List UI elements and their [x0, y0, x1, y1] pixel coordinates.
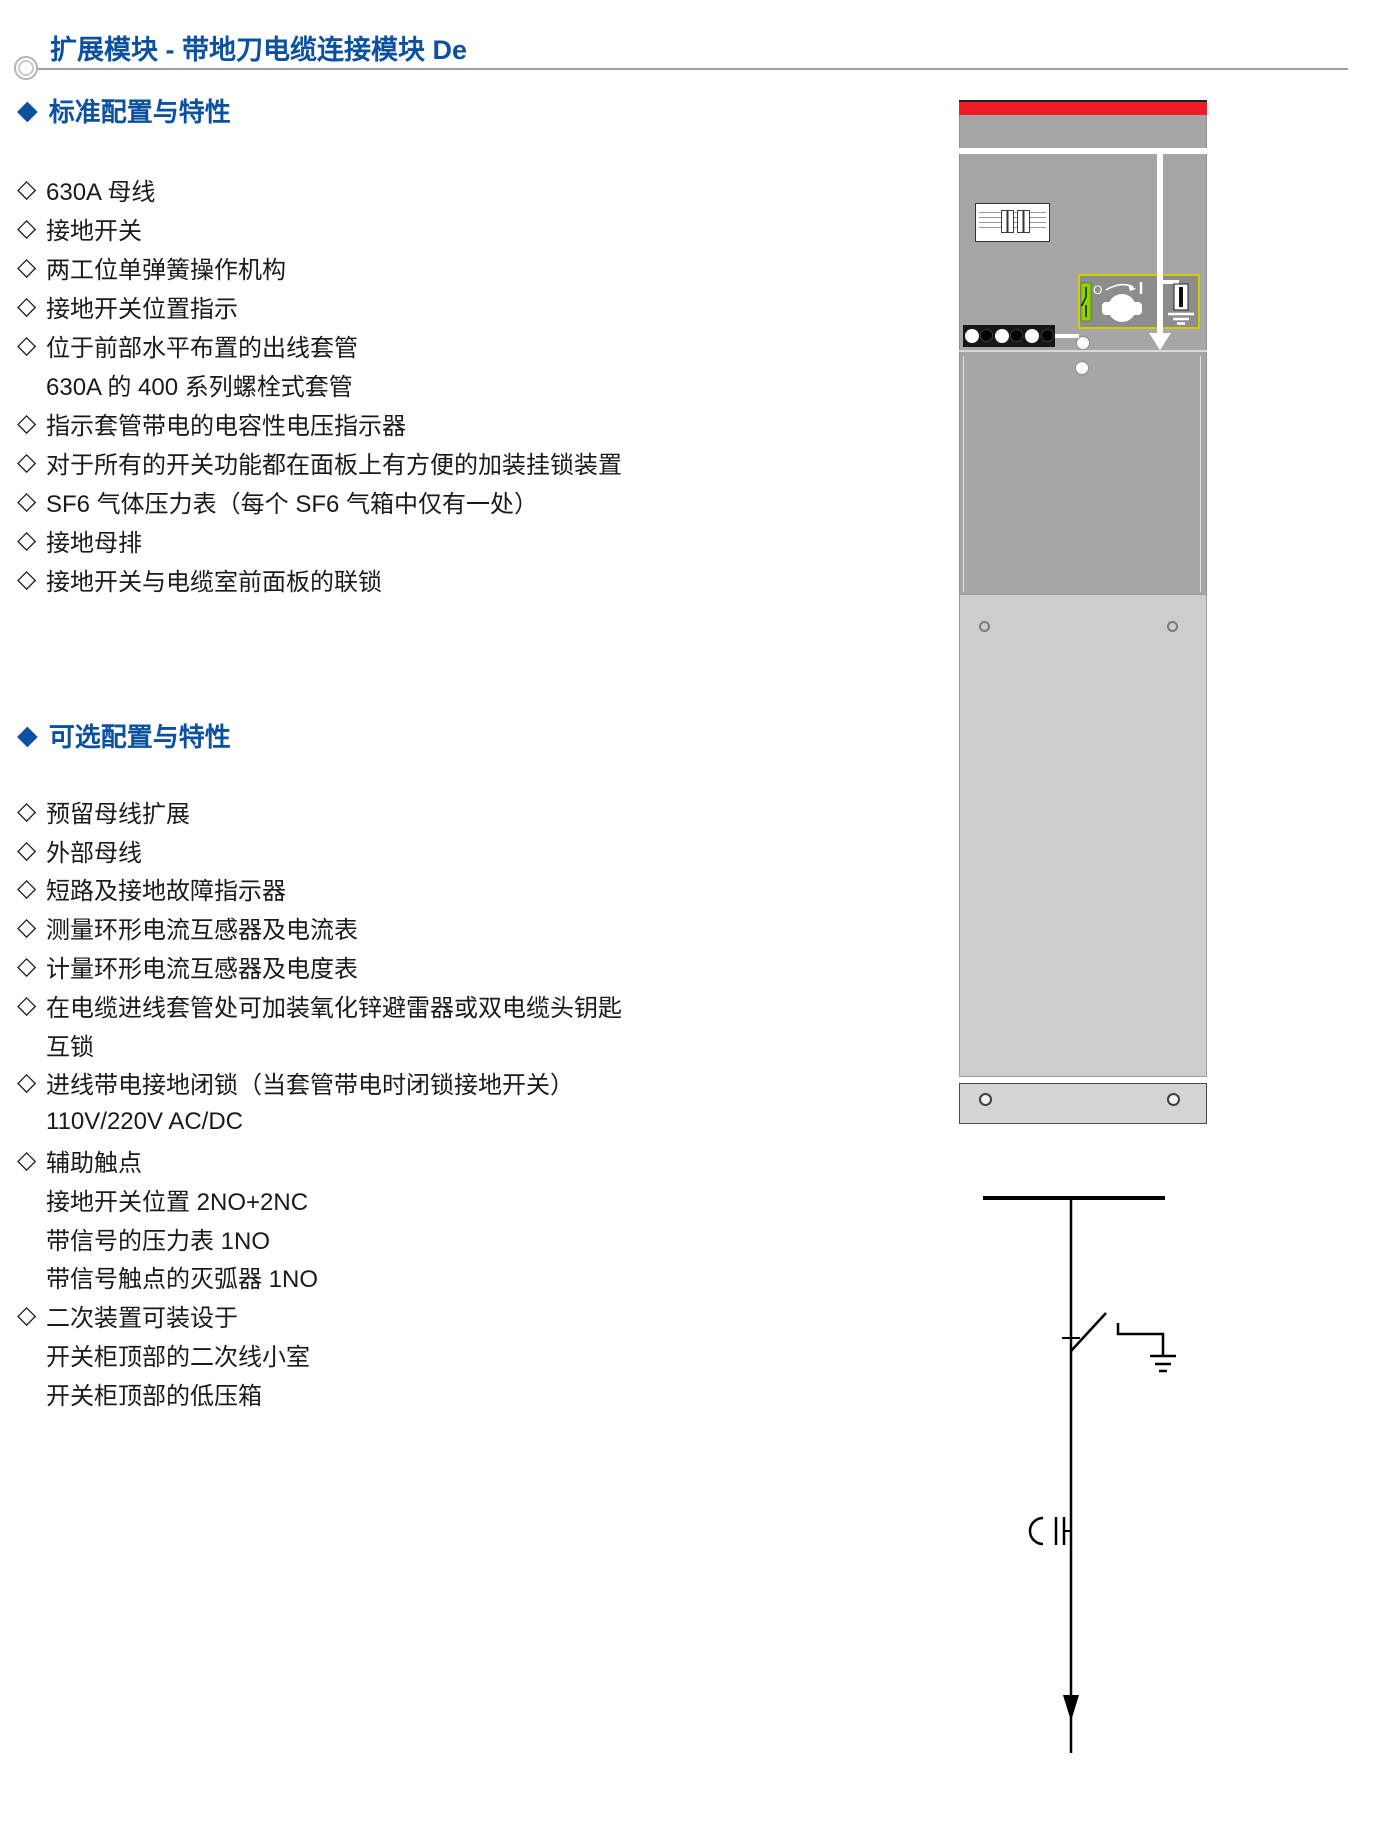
mimic-connector-line	[1055, 334, 1079, 338]
feature-item-text: 计量环形电流互感器及电度表	[46, 949, 358, 984]
feature-list-item: ◇测量环形电流互感器及电流表	[17, 908, 622, 947]
feature-item-text: 指示套管带电的电容性电压指示器	[46, 406, 406, 441]
diamond-bullet-icon: ◇	[17, 294, 46, 319]
plinth-hole-icon	[979, 1093, 992, 1106]
feature-item-text: 短路及接地故障指示器	[46, 871, 286, 906]
bushing-white-circle	[965, 329, 979, 343]
feature-item-text: 630A 母线	[46, 172, 155, 207]
feature-list-subitem: 630A 的 400 系列螺栓式套管	[17, 365, 622, 404]
operation-shaft-hole	[1076, 336, 1090, 350]
cable-arrow-icon	[1063, 1695, 1079, 1721]
feature-list-item: ◇接地开关位置指示	[17, 287, 622, 326]
cabinet-top-red-strip	[959, 100, 1207, 115]
knob-open-mark: O	[1093, 283, 1102, 297]
feature-list-subitem: 互锁	[17, 1025, 622, 1064]
feature-item-text: 接地开关	[46, 211, 142, 246]
ring-decoration-icon	[14, 56, 38, 80]
diamond-bullet-icon: ◇	[17, 799, 46, 824]
feature-item-text: 辅助触点	[46, 1143, 142, 1178]
rating-plate-cell	[1017, 210, 1030, 233]
feature-item-text: 接地母排	[46, 523, 142, 558]
voltage-indicator-socket-arc	[1030, 1518, 1043, 1544]
diamond-bullet-icon: ◇	[17, 1070, 46, 1095]
diamond-bullet-icon: ◇	[17, 876, 46, 901]
bushing-white-circle	[1025, 329, 1039, 343]
switchgear-front-view: O	[959, 100, 1207, 1125]
diamond-bullet-icon: ◇	[17, 528, 46, 553]
bushing-white-circle	[995, 329, 1009, 343]
feature-subitem-text: 开关柜顶部的低压箱	[46, 1376, 262, 1411]
feature-list-subitem: 开关柜顶部的低压箱	[17, 1374, 622, 1413]
rotation-arrowhead-icon	[1128, 284, 1136, 291]
operation-panel-graphics: O	[1078, 274, 1200, 329]
feature-list-item: ◇在电缆进线套管处可加装氧化锌避雷器或双电缆头钥匙	[17, 986, 622, 1025]
feature-subitem-text: 带信号的压力表 1NO	[46, 1221, 270, 1256]
section-heading-text: 可选配置与特性	[49, 717, 231, 754]
diamond-bullet-icon: ◇	[17, 915, 46, 940]
feature-list-item: ◇两工位单弹簧操作机构	[17, 248, 622, 287]
bushing-black-circle	[1042, 330, 1053, 341]
feature-item-text: 接地开关位置指示	[46, 289, 238, 324]
earth-symbol-icon	[1168, 314, 1194, 324]
bushing-black-circle	[981, 330, 992, 341]
door-divider-line	[959, 350, 1207, 352]
rating-plate-cell	[1001, 210, 1014, 233]
panel-screw-icon	[1167, 621, 1178, 632]
diamond-bullet-icon: ◇	[17, 450, 46, 475]
feature-list-subitem: 接地开关位置 2NO+2NC	[17, 1180, 622, 1219]
feature-list-item: ◇辅助触点	[17, 1141, 622, 1180]
feature-subitem-text: 630A 的 400 系列螺栓式套管	[46, 367, 353, 402]
feature-list-subitem: 开关柜顶部的二次线小室	[17, 1335, 622, 1374]
earthing-contact-blade	[1179, 287, 1183, 307]
feature-list-item: ◇SF6 气体压力表（每个 SF6 气箱中仅有一处）	[17, 482, 622, 521]
feature-list-subitem: 110V/220V AC/DC	[17, 1102, 622, 1141]
panel-screw-icon	[979, 621, 990, 632]
feature-item-text: 位于前部水平布置的出线套管	[46, 328, 358, 363]
cable-compartment-cover	[959, 594, 1207, 1077]
section-heading-text: 标准配置与特性	[49, 92, 231, 129]
feature-list-item: ◇二次装置可装设于	[17, 1296, 622, 1335]
feature-item-text: 接地开关与电缆室前面板的联锁	[46, 562, 382, 597]
single-line-diagram	[959, 1190, 1207, 1760]
rating-plate	[975, 203, 1050, 242]
earth-branch-line	[1118, 1323, 1163, 1356]
feature-list-item: ◇接地开关	[17, 209, 622, 248]
mimic-busbar-line	[959, 148, 1207, 154]
catalog-page: 扩展模块 - 带地刀电缆连接模块 De ◆ 标准配置与特性 ◇630A 母线◇接…	[0, 0, 1373, 1848]
feature-item-text: 对于所有的开关功能都在面板上有方便的加装挂锁装置	[46, 445, 622, 480]
feature-list-item: ◇接地母排	[17, 521, 622, 560]
diamond-bullet-icon: ◇	[17, 993, 46, 1018]
diamond-bullet-icon: ◇	[17, 1148, 46, 1173]
operating-knob[interactable]	[1108, 294, 1136, 322]
feature-list-subitem: 带信号触点的灭弧器 1NO	[17, 1258, 622, 1297]
section-heading-standard: ◆ 标准配置与特性	[17, 95, 231, 125]
diamond-bullet-icon: ◇	[17, 333, 46, 358]
optional-feature-list: ◇预留母线扩展◇外部母线◇短路及接地故障指示器◇测量环形电流互感器及电流表◇计量…	[17, 792, 622, 1413]
header-divider	[36, 68, 1348, 70]
diamond-bullet-icon: ◇	[17, 1303, 46, 1328]
feature-list-item: ◇外部母线	[17, 831, 622, 870]
feature-list-subitem: 带信号的压力表 1NO	[17, 1219, 622, 1258]
feature-list-item: ◇对于所有的开关功能都在面板上有方便的加装挂锁装置	[17, 443, 622, 482]
cabinet-plinth	[959, 1083, 1207, 1124]
feature-item-text: SF6 气体压力表（每个 SF6 气箱中仅有一处）	[46, 484, 538, 519]
section-heading-optional: ◆ 可选配置与特性	[17, 720, 231, 750]
feature-list-item: ◇预留母线扩展	[17, 792, 622, 831]
earthing-switch-blade	[1071, 1313, 1106, 1351]
feature-item-text: 在电缆进线套管处可加装氧化锌避雷器或双电缆头钥匙	[46, 988, 622, 1023]
page-title: 扩展模块 - 带地刀电缆连接模块 De	[50, 28, 467, 67]
standard-feature-list: ◇630A 母线◇接地开关◇两工位单弹簧操作机构◇接地开关位置指示◇位于前部水平…	[17, 170, 622, 599]
feature-item-text: 测量环形电流互感器及电流表	[46, 910, 358, 945]
diamond-bullet-icon: ◇	[17, 177, 46, 202]
diamond-bullet-icon: ◇	[17, 954, 46, 979]
feature-item-text: 两工位单弹簧操作机构	[46, 250, 286, 285]
diamond-bullet-icon: ◇	[17, 567, 46, 592]
diamond-marker-icon: ◆	[17, 97, 38, 124]
feature-list-item: ◇位于前部水平布置的出线套管	[17, 326, 622, 365]
diamond-marker-icon: ◆	[17, 722, 38, 749]
feature-list-item: ◇计量环形电流互感器及电度表	[17, 947, 622, 986]
bushing-black-circle	[1011, 330, 1022, 341]
mimic-feeder-arrow-icon	[1149, 333, 1171, 350]
feature-item-text: 外部母线	[46, 833, 142, 868]
feature-subitem-text: 互锁	[46, 1027, 94, 1062]
feature-item-text: 预留母线扩展	[46, 794, 190, 829]
feature-list-item: ◇指示套管带电的电容性电压指示器	[17, 404, 622, 443]
earth-symbol-icon	[1150, 1356, 1176, 1371]
cable-bushing-strip	[963, 325, 1055, 347]
lower-door-inset	[963, 356, 1201, 592]
feature-item-text: 二次装置可装设于	[46, 1298, 238, 1333]
diamond-bullet-icon: ◇	[17, 216, 46, 241]
feature-list-item: ◇630A 母线	[17, 170, 622, 209]
feature-list-item: ◇短路及接地故障指示器	[17, 870, 622, 909]
operation-shaft-hole	[1075, 361, 1089, 375]
feature-subitem-text: 接地开关位置 2NO+2NC	[46, 1182, 308, 1217]
feature-subitem-text: 带信号触点的灭弧器 1NO	[46, 1259, 318, 1294]
diamond-bullet-icon: ◇	[17, 411, 46, 436]
feature-subitem-text: 110V/220V AC/DC	[46, 1108, 243, 1136]
plinth-hole-icon	[1167, 1093, 1180, 1106]
diamond-bullet-icon: ◇	[17, 489, 46, 514]
feature-subitem-text: 开关柜顶部的二次线小室	[46, 1337, 310, 1372]
feature-list-item: ◇接地开关与电缆室前面板的联锁	[17, 560, 622, 599]
diamond-bullet-icon: ◇	[17, 255, 46, 280]
diamond-bullet-icon: ◇	[17, 838, 46, 863]
feature-item-text: 进线带电接地闭锁（当套管带电时闭锁接地开关）	[46, 1065, 574, 1100]
feature-list-item: ◇进线带电接地闭锁（当套管带电时闭锁接地开关）	[17, 1064, 622, 1103]
